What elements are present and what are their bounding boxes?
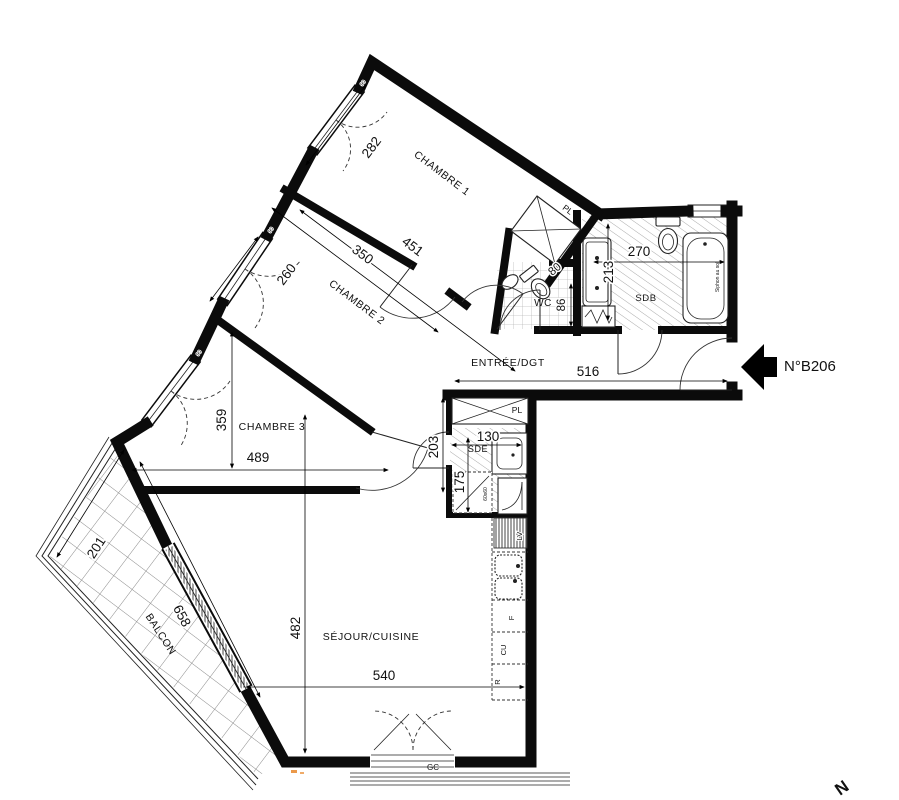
floor-plan-page: PL PL Siphon au sol <box>0 0 899 800</box>
dim-213: 213 <box>601 261 616 284</box>
doors <box>350 265 732 785</box>
dim-540: 540 <box>373 668 396 683</box>
dim-489: 489 <box>247 450 270 465</box>
bathtub-icon: Siphon au sol <box>683 233 728 323</box>
room-label-wc: WC <box>534 298 552 309</box>
print-marks <box>291 770 304 774</box>
tall-unit <box>498 478 527 514</box>
dim-482: 482 <box>288 617 303 640</box>
door-chambre2 <box>380 265 455 318</box>
dim-130: 130 <box>477 429 500 444</box>
kitchen-sink-icon <box>495 555 522 599</box>
closet-pl2: PL <box>452 398 528 424</box>
entrance-arrow-icon <box>741 344 777 390</box>
dim-86: 86 <box>556 299 568 312</box>
washer-size-label: 60x60 <box>483 487 489 501</box>
room-label-sde: SDE <box>468 444 488 454</box>
kitchen-strip: LV F CU R <box>492 518 528 700</box>
floor-plan-drawing: PL PL Siphon au sol <box>0 0 899 800</box>
guardrail <box>350 773 570 785</box>
dim-516: 516 <box>577 364 600 379</box>
dim-359: 359 <box>214 409 229 432</box>
door-sdb <box>618 330 662 374</box>
entrance-marker: N°B206 <box>741 344 836 390</box>
french-door <box>370 711 455 771</box>
dim-270: 270 <box>628 244 651 259</box>
toilet-icon <box>656 217 680 254</box>
kitchen-label-fridge: R <box>493 679 502 685</box>
window-sdb <box>688 205 726 217</box>
room-label-sejour: SÉJOUR/CUISINE <box>323 630 420 643</box>
room-label-sdb: SDB <box>635 293 656 304</box>
room-label-chambre2: CHAMBRE 2 <box>327 278 387 328</box>
closet-pl2-label: PL <box>512 405 523 415</box>
room-label-chambre3: CHAMBRE 3 <box>239 421 306 433</box>
guardrail-label: GC <box>427 763 439 772</box>
radiator-icon <box>582 306 615 327</box>
dim-175: 175 <box>452 471 467 494</box>
kitchen-label-dishwasher: LV <box>515 532 524 541</box>
kitchen-label-hob: CU <box>499 645 508 656</box>
dim-282: 282 <box>359 134 385 161</box>
north-indicator: N <box>831 777 852 800</box>
siphon-label: Siphon au sol <box>715 262 721 292</box>
room-label-chambre1: CHAMBRE 1 <box>412 149 472 199</box>
kitchen-label-oven: F <box>507 615 516 620</box>
door-entrance <box>680 338 732 390</box>
door-chambre3 <box>356 432 428 490</box>
unit-number-label: N°B206 <box>784 358 836 375</box>
dim-203: 203 <box>426 436 441 459</box>
room-label-entree: ENTRÉE/DGT <box>471 356 545 369</box>
dim-260: 260 <box>274 261 300 288</box>
